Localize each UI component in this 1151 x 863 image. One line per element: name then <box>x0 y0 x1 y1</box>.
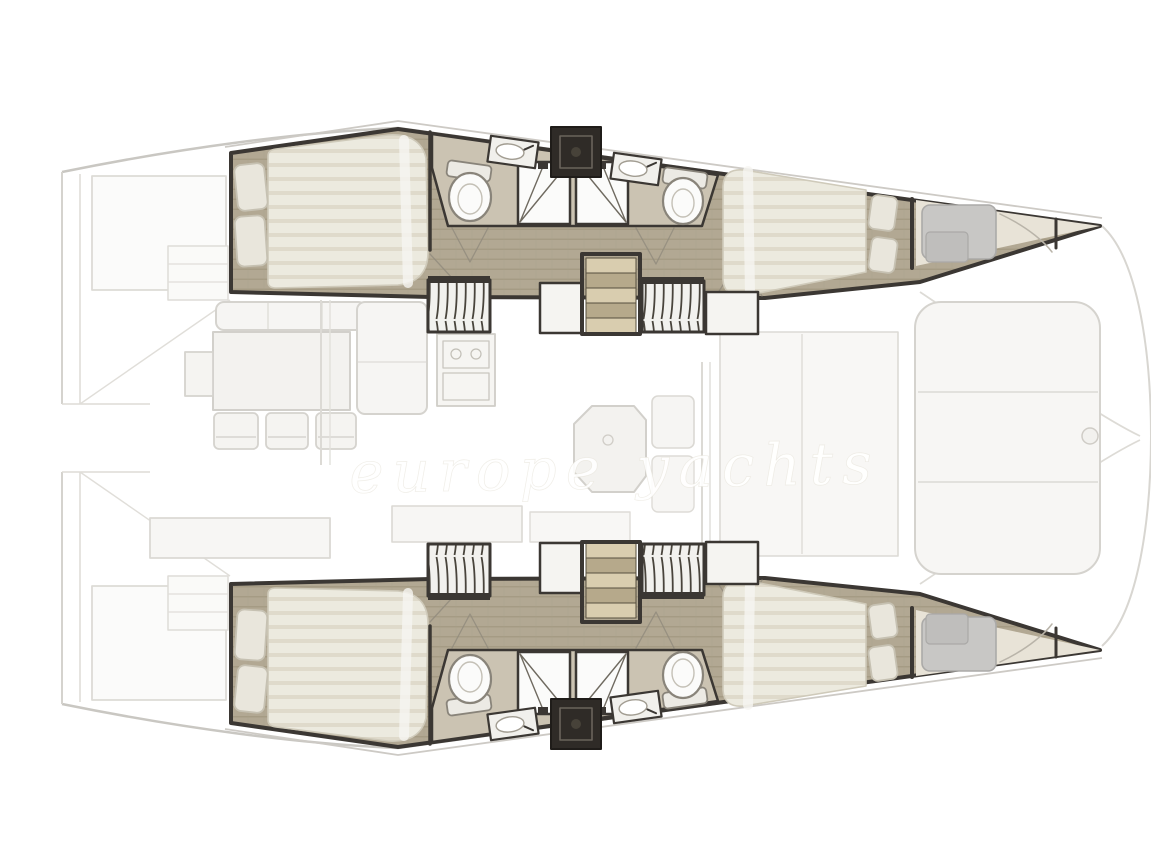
sofa-side-section <box>357 302 427 414</box>
sofa-back-section <box>216 302 366 330</box>
pillow <box>868 236 898 273</box>
shower-fitting <box>538 163 548 169</box>
galley-counter-aft <box>392 506 522 542</box>
pillow <box>234 163 269 212</box>
table-mount <box>1082 428 1098 444</box>
chair <box>214 413 258 449</box>
transom-steps <box>168 246 228 300</box>
step <box>586 273 636 288</box>
duvet-fold <box>748 171 750 294</box>
hanging-locker-forward <box>642 277 704 332</box>
galley-counter-aft-2 <box>530 512 630 542</box>
companionway-stairs <box>582 254 640 334</box>
sink-aft <box>487 136 538 168</box>
floor-plan-canvas: europe yachts <box>0 0 1151 863</box>
watermark: europe yachts <box>349 429 882 506</box>
duvet-fold <box>404 140 408 283</box>
pillow <box>868 194 898 231</box>
forward-cockpit-bench <box>915 302 1100 574</box>
hanging-locker-aft <box>428 276 490 332</box>
bowsprit-outline <box>1102 226 1151 646</box>
storage-berth-cushion <box>926 232 968 262</box>
dinette-chairs <box>214 413 356 449</box>
hatch-center <box>571 147 581 157</box>
step <box>586 288 636 303</box>
deck-hatch-unit <box>551 127 601 177</box>
toilet-aft <box>446 160 492 221</box>
table-side-tab <box>185 352 213 396</box>
pillow <box>234 215 267 267</box>
step <box>586 318 636 334</box>
cabinet-forward <box>706 292 758 334</box>
catamaran-floor-plan: europe yachts <box>0 0 1151 863</box>
aft-bench <box>150 518 330 558</box>
sink-forward <box>610 153 661 185</box>
galley-stove-unit <box>437 334 495 406</box>
cabinet <box>540 283 582 333</box>
step <box>586 303 636 318</box>
locker-rail <box>428 276 490 283</box>
locker-rail <box>642 277 704 284</box>
chair <box>266 413 308 449</box>
